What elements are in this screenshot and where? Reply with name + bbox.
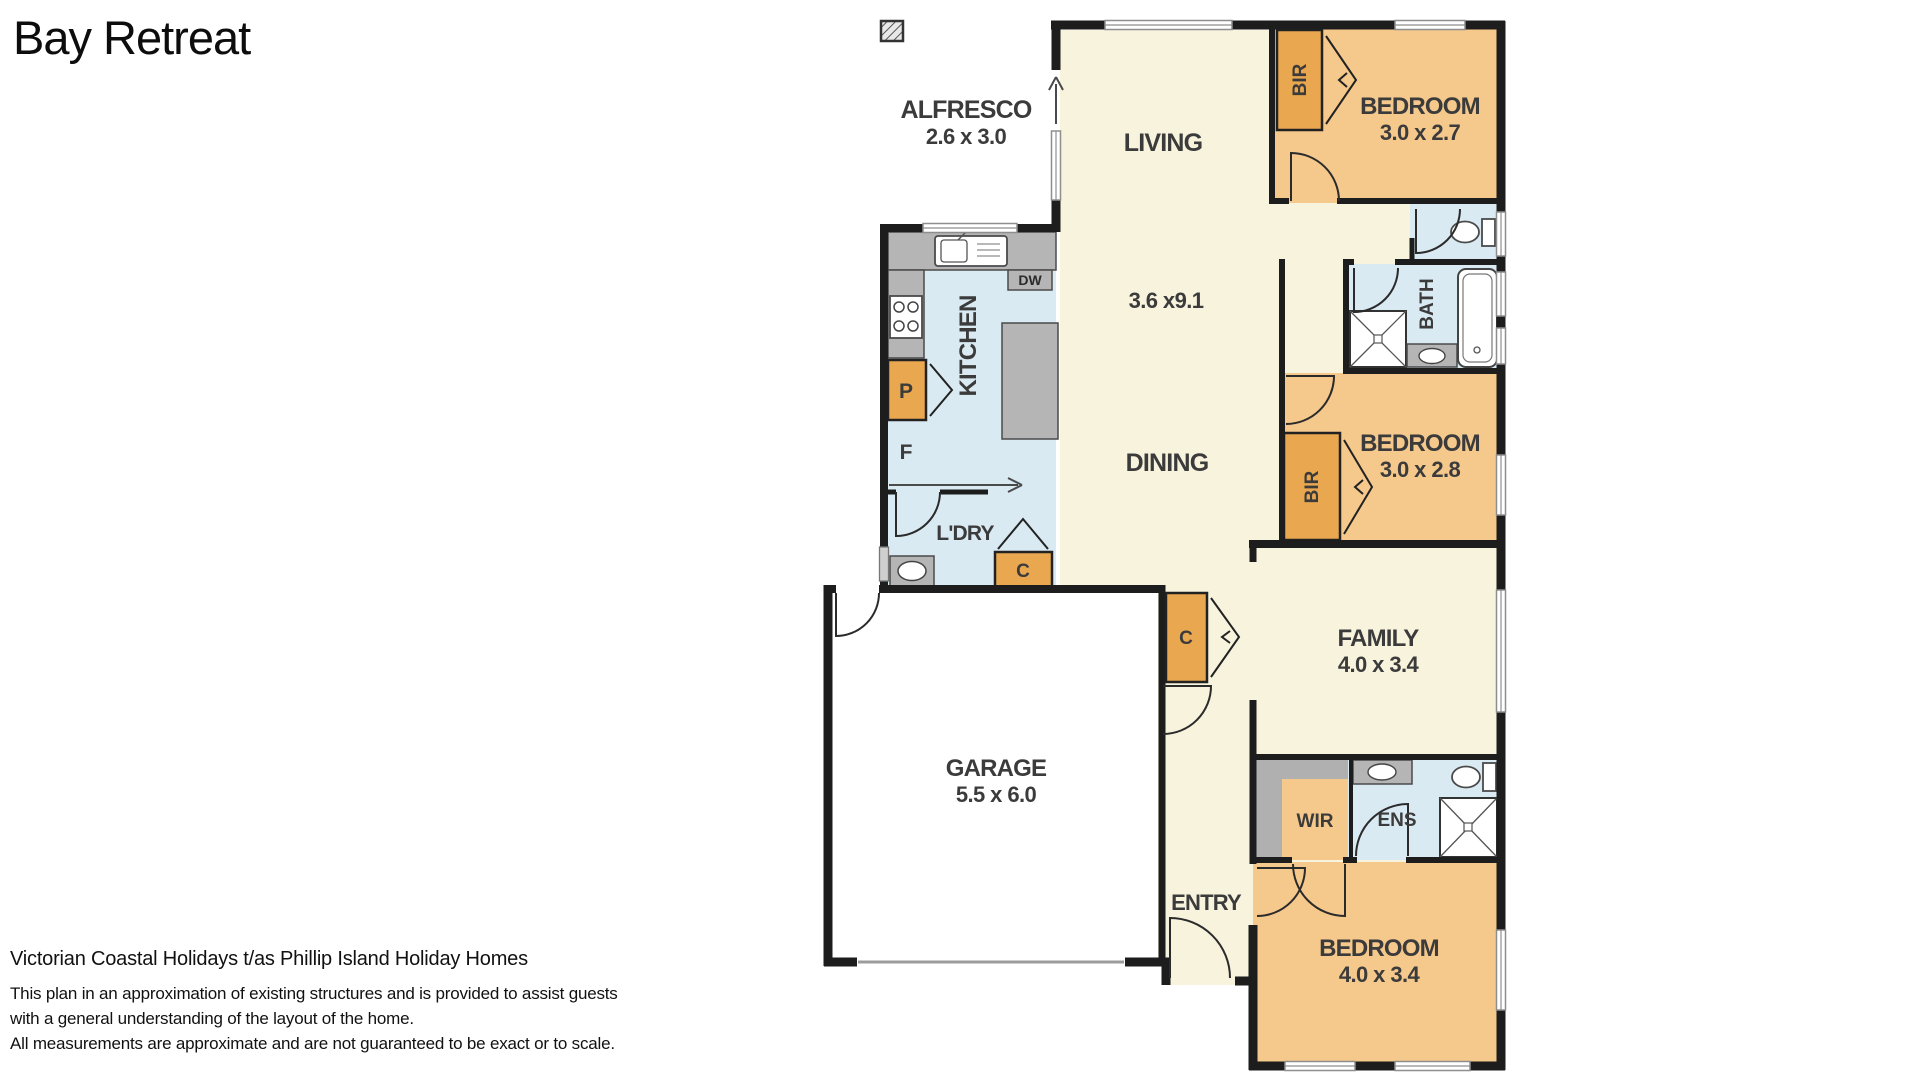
dims-living: 3.6 x9.1 xyxy=(1129,288,1204,313)
label-family: FAMILY xyxy=(1338,625,1420,652)
label-laundry: L'DRY xyxy=(936,522,994,545)
dims-bedroom3: 4.0 x 3.4 xyxy=(1339,962,1421,987)
footer-company: Victorian Coastal Holidays t/as Phillip … xyxy=(10,948,618,971)
label-bedroom2: BEDROOM xyxy=(1360,430,1480,457)
kitchen-island xyxy=(1002,323,1058,439)
label-bath: BATH xyxy=(1417,278,1438,329)
dims-garage: 5.5 x 6.0 xyxy=(956,782,1037,807)
label-robe1: BIR xyxy=(1290,63,1311,96)
ens-vanity-icon xyxy=(1353,760,1412,784)
laundry-side-door xyxy=(880,547,889,581)
footer-disclaimer-line2: with a general understanding of the layo… xyxy=(10,1006,618,1031)
window xyxy=(1497,590,1506,712)
label-fridge: F xyxy=(900,441,913,464)
label-bedroom1: BEDROOM xyxy=(1360,93,1480,120)
label-pantry: P xyxy=(899,380,913,403)
exterior-patch xyxy=(1056,966,1166,1080)
window xyxy=(1497,455,1506,515)
label-garage: GARAGE xyxy=(946,755,1047,782)
window xyxy=(1497,272,1506,316)
window xyxy=(1395,21,1465,30)
dims-bedroom2: 3.0 x 2.8 xyxy=(1380,457,1461,482)
label-bedroom3: BEDROOM xyxy=(1319,935,1439,962)
window xyxy=(1497,212,1506,256)
label-dining: DINING xyxy=(1126,449,1209,477)
label-dishwasher: DW xyxy=(1018,272,1042,288)
window xyxy=(1497,328,1506,364)
window xyxy=(1105,21,1232,30)
label-alfresco: ALFRESCO xyxy=(900,96,1031,124)
cooktop-icon xyxy=(890,296,922,338)
ens-shower-icon xyxy=(1440,798,1497,857)
footer: Victorian Coastal Holidays t/as Phillip … xyxy=(10,948,618,1056)
label-entry: ENTRY xyxy=(1171,890,1242,915)
label-hall-cupboard: C xyxy=(1179,628,1193,649)
alfresco-post-icon xyxy=(881,21,903,41)
label-robe2: BIR xyxy=(1302,470,1323,503)
label-living: LIVING xyxy=(1124,129,1203,157)
label-laundry-cupboard: C xyxy=(1016,561,1030,582)
window xyxy=(1052,131,1061,200)
dims-family: 4.0 x 3.4 xyxy=(1338,652,1420,677)
bath-vanity-icon xyxy=(1407,344,1457,367)
window xyxy=(1395,1062,1470,1071)
label-ens: ENS xyxy=(1377,810,1416,831)
dims-bedroom1: 3.0 x 2.7 xyxy=(1380,120,1461,145)
footer-disclaimer-line1: This plan in an approximation of existin… xyxy=(10,981,618,1006)
dims-alfresco: 2.6 x 3.0 xyxy=(926,124,1007,149)
page: Bay Retreat xyxy=(0,0,1920,1080)
floor-plan: ALFRESCO 2.6 x 3.0 LIVING 3.6 x9.1 DININ… xyxy=(0,0,1920,1080)
window xyxy=(1497,930,1506,1010)
room-floors xyxy=(832,28,1501,1080)
sink-icon xyxy=(935,230,1007,266)
laundry-trough-icon xyxy=(890,556,934,587)
exterior-patch xyxy=(1166,985,1251,1080)
shower-icon xyxy=(1350,311,1406,367)
label-kitchen: KITCHEN xyxy=(955,295,982,396)
footer-disclaimer-line3: All measurements are approximate and are… xyxy=(10,1031,618,1056)
window xyxy=(1285,1062,1355,1071)
bathtub-icon xyxy=(1458,269,1497,367)
label-wir: WIR xyxy=(1297,811,1334,832)
window xyxy=(923,224,1017,233)
